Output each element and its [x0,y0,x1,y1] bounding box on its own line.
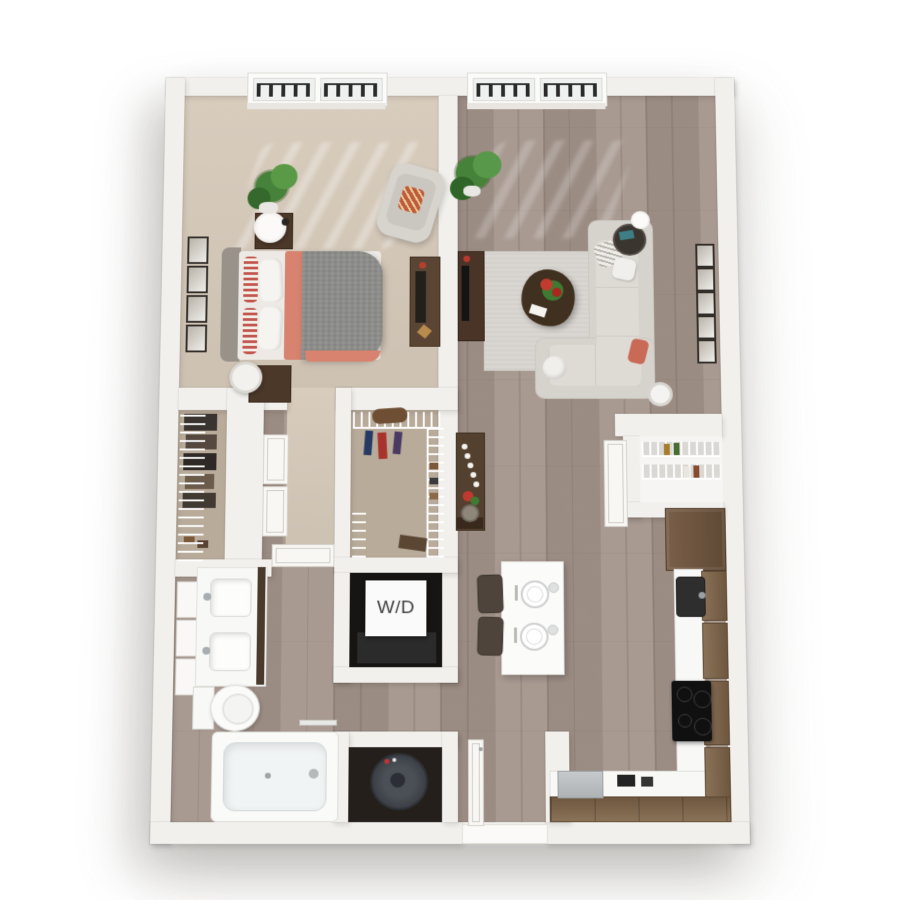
living-window-sill [467,103,605,109]
candle [468,463,474,469]
living-window [467,73,607,107]
decor-tray [461,504,480,522]
candle [465,453,471,459]
kitchen-island [501,561,565,675]
place-setting-plate [521,580,550,608]
pantry-door [604,440,628,527]
wall-art-frame [187,266,209,294]
striped-pillow [243,257,258,303]
console-decor-red [463,256,470,262]
reach-in-right-wall [224,388,264,577]
vanity-sink [210,579,252,617]
flower-centerpiece [552,288,562,297]
tub-faucet [309,769,319,779]
coral-throw-edge [305,350,380,361]
vanity-sink [209,632,251,671]
floor-plan-canvas: W/D [0,0,900,900]
balcony-railing-icon [477,83,530,96]
tub-drain [265,773,271,779]
bar-stool [477,617,504,656]
wire-shelving [178,410,206,561]
upper-cabinet-row [550,796,732,822]
wall-art-frame [696,268,716,292]
white-pillow [258,306,284,351]
striped-pillow [242,308,257,354]
plant-pot [259,202,278,214]
wall-art-frame [186,295,208,323]
washer-dryer-unit [357,632,436,663]
nightstand-decor [282,218,290,225]
apartment-unit: W/D [150,78,750,844]
wall-art-frame [697,315,717,339]
burner [676,687,692,703]
bottom-wall-left [150,822,462,844]
water-heater-valve-white [392,758,396,762]
white-throw-pillow [611,256,637,281]
balcony-railing-icon [257,83,310,96]
wall-art-frame [697,339,717,363]
entry-threshold [462,824,548,844]
table-lamp [631,211,650,229]
round-throw-pillow [543,356,567,379]
balcony-railing-icon [324,83,377,96]
glassware [548,582,559,593]
bathroom-door [272,544,335,567]
pantry-top-wall [615,414,722,436]
wall-art-frame [696,291,716,315]
dishwasher [557,771,603,799]
plant-foliage [271,164,298,189]
pantry-bottle [674,443,680,455]
candle [470,472,476,478]
desk-decor-red [419,262,426,268]
decor-vase [647,382,673,406]
utility-right-wall [442,732,458,823]
shoes [430,463,439,470]
burner [694,718,712,736]
burner [693,691,711,709]
towel-bar [299,720,337,726]
pantry-bottle [684,466,690,477]
counter-appliance [617,775,635,787]
pantry-wire-shelf [641,442,720,457]
kitchen-faucet [699,592,706,599]
closet-door [263,434,289,484]
washer-dryer-label: W/D [377,598,415,619]
entry-door-handle [479,747,483,751]
glassware [547,625,558,636]
utility-top-wall [333,732,458,748]
bedroom-window-sill [247,103,386,109]
wall-art-frame [187,237,209,264]
water-heater-valve-red [384,759,389,764]
wall-art-frame [185,325,207,353]
wire-shelving [352,508,366,557]
wall-art-frame [695,244,715,268]
desk-monitor [415,271,426,323]
bar-stool [477,574,504,613]
tv [462,266,470,321]
candle [462,444,468,450]
pantry-bottle [693,465,699,477]
balcony-railing-icon [544,83,597,96]
hanging-tie [377,432,387,459]
shoes [430,478,439,485]
gray-duvet [301,251,383,360]
walk-in-bottom-wall [334,557,458,572]
entry-door [468,739,484,826]
walk-in-left-wall [334,388,351,573]
white-pillow [259,258,284,303]
shoes [430,493,439,500]
laundry-bottom-wall [333,667,458,683]
cutlery [515,585,518,600]
candle [473,481,479,487]
plant-foliage [473,151,502,178]
pantry-bottle [664,444,670,455]
plant-pot [463,186,480,197]
flower-centerpiece [540,279,553,291]
counter-appliance [641,777,653,787]
bedroom-window [247,73,388,107]
closet-door [262,486,288,536]
washer-dryer-label-card: W/D [365,580,426,636]
cutlery [514,628,517,643]
hallway-carpet [285,388,335,548]
burner [678,714,692,728]
bottom-wall-right [546,822,750,844]
refrigerator [665,508,727,571]
vanity-cabinet-front [256,567,265,685]
upper-cabinet [702,623,729,679]
place-setting-plate [520,623,549,651]
cooktop [671,681,712,742]
duffel-bag [372,407,408,424]
water-heater-cap [390,773,405,788]
pantry-wire-shelf [642,465,721,480]
